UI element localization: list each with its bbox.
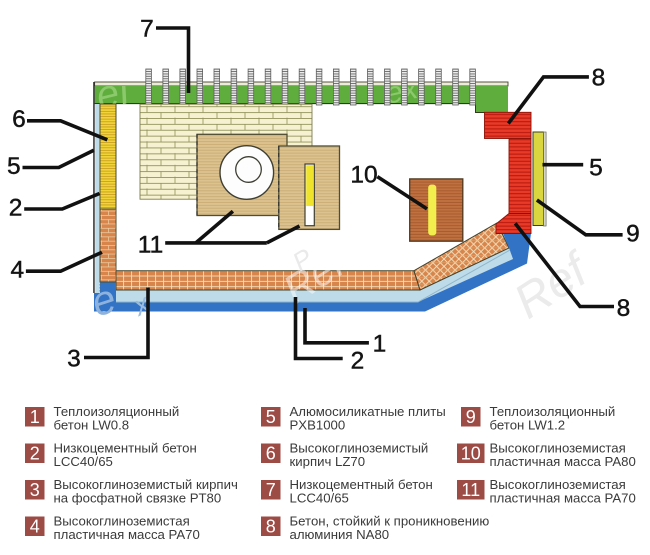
svg-text:9: 9 xyxy=(626,221,640,248)
svg-text:2: 2 xyxy=(351,348,365,375)
svg-text:8: 8 xyxy=(592,65,606,92)
svg-text:10: 10 xyxy=(461,444,481,464)
svg-text:LCC40/65: LCC40/65 xyxy=(54,454,113,469)
svg-text:11: 11 xyxy=(461,480,480,500)
svg-text:4: 4 xyxy=(10,257,24,284)
svg-text:бетон LW0.8: бетон LW0.8 xyxy=(54,418,130,433)
svg-text:6: 6 xyxy=(12,106,26,133)
svg-text:11: 11 xyxy=(138,232,163,259)
svg-text:PXB1000: PXB1000 xyxy=(290,418,346,433)
svg-text:пластичная масса PA70: пластичная масса PA70 xyxy=(490,491,636,506)
svg-text:2: 2 xyxy=(30,444,40,464)
svg-text:7: 7 xyxy=(140,16,154,43)
svg-text:9: 9 xyxy=(466,407,476,427)
svg-text:кирпич LZ70: кирпич LZ70 xyxy=(290,454,366,469)
svg-text:4: 4 xyxy=(30,517,40,537)
svg-text:пластичная масса PA80: пластичная масса PA80 xyxy=(490,454,636,469)
svg-text:8: 8 xyxy=(266,517,276,537)
svg-text:10: 10 xyxy=(350,161,377,188)
svg-text:на фосфатной связке PT80: на фосфатной связке PT80 xyxy=(54,491,222,506)
svg-text:пластичная масса PA70: пластичная масса PA70 xyxy=(54,527,200,542)
svg-text:3: 3 xyxy=(67,346,81,373)
svg-text:бетон LW1.2: бетон LW1.2 xyxy=(490,418,566,433)
svg-text:LCC40/65: LCC40/65 xyxy=(290,491,349,506)
svg-text:алюминия NA80: алюминия NA80 xyxy=(290,527,390,542)
svg-text:7: 7 xyxy=(266,480,276,500)
svg-text:5: 5 xyxy=(7,153,21,180)
svg-text:1: 1 xyxy=(373,331,387,358)
svg-text:5: 5 xyxy=(266,407,276,427)
svg-text:2: 2 xyxy=(9,194,23,221)
svg-text:1: 1 xyxy=(30,407,40,427)
svg-text:8: 8 xyxy=(617,295,631,322)
svg-text:3: 3 xyxy=(30,480,40,500)
svg-text:6: 6 xyxy=(266,444,276,464)
svg-text:5: 5 xyxy=(589,155,603,182)
